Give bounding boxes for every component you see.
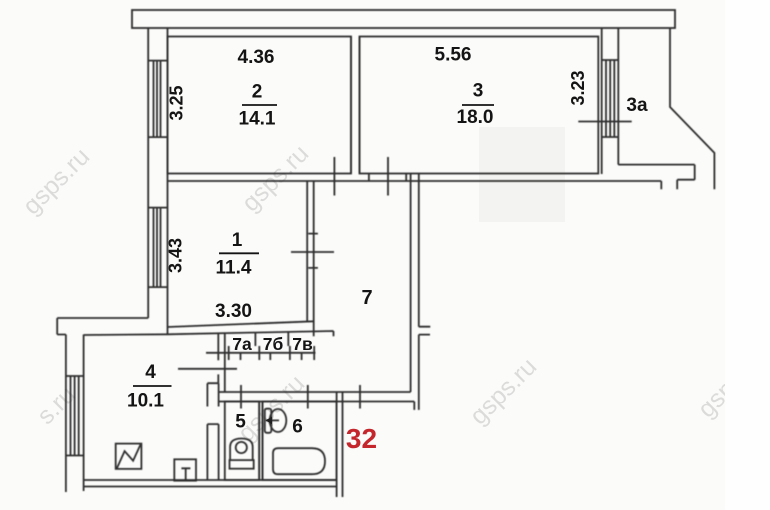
svg-text:1: 1 — [232, 230, 243, 251]
svg-text:3.25: 3.25 — [167, 85, 187, 120]
svg-text:5.56: 5.56 — [435, 45, 472, 66]
svg-text:3а: 3а — [626, 95, 648, 116]
svg-text:2: 2 — [252, 82, 263, 103]
svg-text:14.1: 14.1 — [239, 109, 276, 130]
svg-text:3.23: 3.23 — [568, 70, 588, 105]
svg-text:4: 4 — [145, 362, 156, 383]
svg-text:32: 32 — [346, 423, 377, 454]
svg-text:7: 7 — [361, 287, 372, 309]
svg-text:7б: 7б — [263, 334, 284, 354]
svg-text:6: 6 — [292, 417, 303, 438]
svg-text:18.0: 18.0 — [457, 107, 494, 128]
svg-text:3.43: 3.43 — [166, 238, 186, 273]
svg-text:5: 5 — [235, 412, 246, 433]
svg-text:10.1: 10.1 — [127, 391, 164, 412]
svg-text:7а: 7а — [232, 334, 252, 354]
svg-text:3.30: 3.30 — [215, 301, 252, 322]
svg-text:7в: 7в — [292, 334, 313, 354]
svg-text:4.36: 4.36 — [238, 47, 275, 68]
svg-text:3: 3 — [473, 81, 484, 102]
svg-text:11.4: 11.4 — [216, 258, 252, 279]
